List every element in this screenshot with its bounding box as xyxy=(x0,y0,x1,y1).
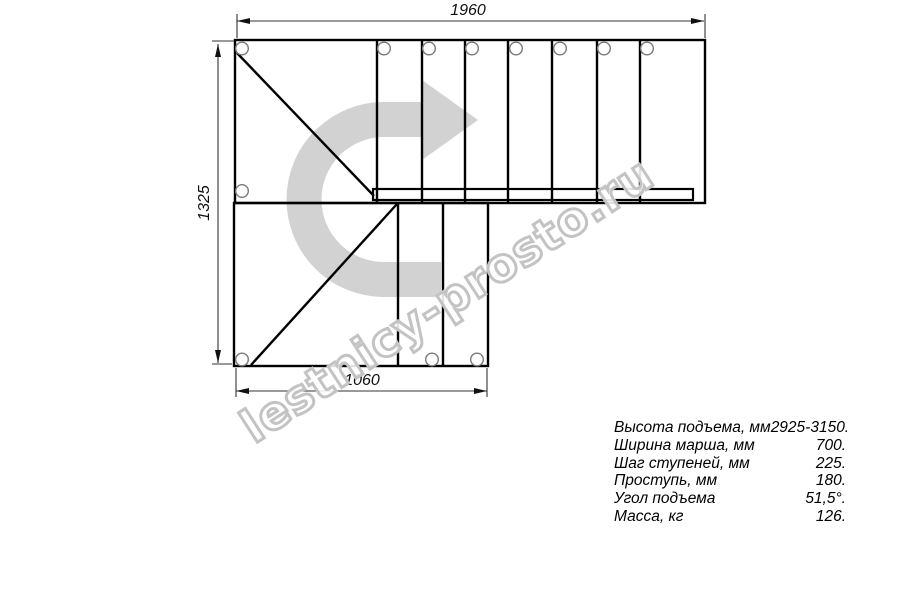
spec-label: Шаг ступеней, мм xyxy=(614,455,750,473)
spec-value: 2925-3150. xyxy=(771,419,849,437)
mounting-hole xyxy=(236,42,249,55)
spec-row: Шаг ступеней, мм 225. xyxy=(614,455,846,473)
mounting-hole xyxy=(236,185,249,198)
spec-value: 700. xyxy=(816,437,846,455)
mounting-hole xyxy=(471,353,484,366)
dim-arrow xyxy=(474,388,487,394)
mounting-hole xyxy=(426,353,439,366)
spec-label: Масса, кг xyxy=(614,508,683,526)
spec-value: 225. xyxy=(816,455,846,473)
dim-arrow xyxy=(215,44,221,57)
dim-arrow xyxy=(215,350,221,363)
mounting-hole xyxy=(641,42,654,55)
spec-row: Угол подъема 51,5°. xyxy=(614,490,846,508)
spec-label: Проступь, мм xyxy=(614,472,717,490)
stair-drawing-canvas: 1960 1325 1060 lestnicy-prosto.ru Высота… xyxy=(0,0,900,600)
mounting-hole xyxy=(598,42,611,55)
dim-arrow xyxy=(237,18,250,24)
dimension-bottom-label: 1060 xyxy=(322,372,402,390)
dimension-top-label: 1960 xyxy=(428,2,508,20)
direction-arrow-icon xyxy=(304,80,478,280)
dimension-lines xyxy=(212,14,705,397)
spec-row: Проступь, мм 180. xyxy=(614,472,846,490)
spec-label: Высота подъема, мм xyxy=(614,419,771,437)
spec-value: 180. xyxy=(816,472,846,490)
dimension-left-label: 1325 xyxy=(196,185,214,221)
mounting-hole xyxy=(378,42,391,55)
spec-label: Угол подъема xyxy=(614,490,715,508)
spec-row: Масса, кг 126. xyxy=(614,508,846,526)
mounting-hole xyxy=(510,42,523,55)
dim-arrow xyxy=(691,18,704,24)
mounting-hole xyxy=(554,42,567,55)
spec-table: Высота подъема, мм 2925-3150. Ширина мар… xyxy=(614,419,846,526)
spec-row: Высота подъема, мм 2925-3150. xyxy=(614,419,846,437)
mounting-hole xyxy=(423,42,436,55)
mounting-hole xyxy=(236,353,249,366)
spec-value: 126. xyxy=(816,508,846,526)
direction-arrow-head xyxy=(422,80,478,160)
spec-value: 51,5°. xyxy=(805,490,846,508)
staircase-linework xyxy=(234,40,705,366)
spec-label: Ширина марша, мм xyxy=(614,437,755,455)
mounting-hole xyxy=(466,42,479,55)
spec-row: Ширина марша, мм 700. xyxy=(614,437,846,455)
dim-arrow xyxy=(236,388,249,394)
